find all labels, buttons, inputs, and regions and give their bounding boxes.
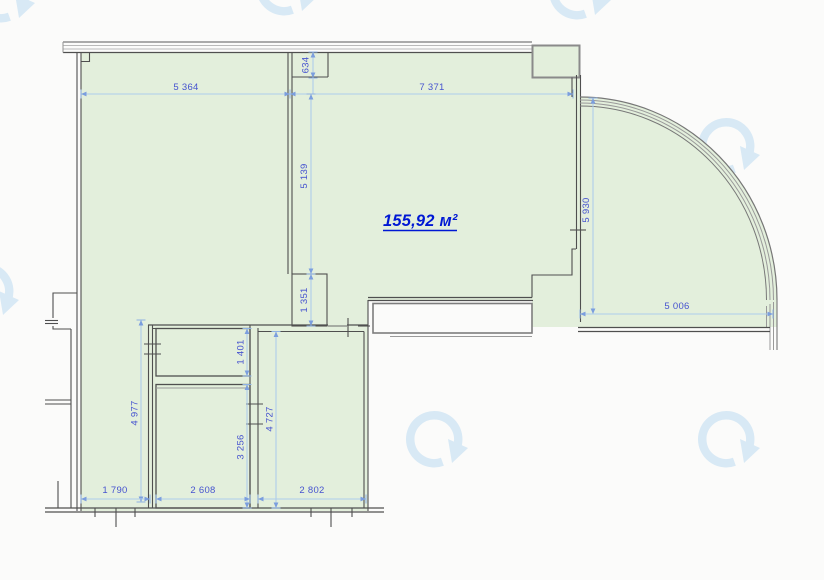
watermark-icon: [553, 0, 611, 15]
dim-label-634: 634: [301, 57, 312, 74]
floor-plan-page: 5 364 7 371 634 5 139 1 351 5 930 5 006 …: [0, 0, 824, 580]
dim-label-5006: 5 006: [664, 301, 689, 312]
neighbor-void: [373, 304, 532, 334]
dim-label-5930: 5 930: [581, 197, 592, 222]
dim-label-5139: 5 139: [299, 163, 310, 188]
floor-plan-canvas: 5 364 7 371 634 5 139 1 351 5 930 5 006 …: [0, 0, 824, 580]
left-exterior-wall: [45, 52, 81, 511]
dim-label-3256: 3 256: [236, 434, 247, 459]
dim-label-2608: 2 608: [190, 485, 215, 496]
watermark-icon: [0, 0, 35, 18]
top-right-pier: [533, 46, 580, 78]
dim-label-4977: 4 977: [130, 400, 141, 425]
dim-label-5364: 5 364: [173, 82, 198, 93]
watermark-icon: [260, 0, 318, 11]
dim-label-1790: 1 790: [102, 485, 127, 496]
watermark-icon: [410, 415, 468, 463]
area-label-group: 155,92 м²: [383, 212, 458, 231]
dim-label-1351: 1 351: [299, 287, 310, 312]
dim-label-1401: 1 401: [236, 339, 247, 364]
dim-label-4727: 4 727: [265, 406, 276, 431]
watermark-icon: [0, 267, 19, 315]
watermark-icon: [702, 415, 760, 463]
dim-label-2802: 2 802: [299, 485, 324, 496]
area-label: 155,92 м²: [383, 212, 458, 230]
dim-label-7371: 7 371: [419, 82, 444, 93]
